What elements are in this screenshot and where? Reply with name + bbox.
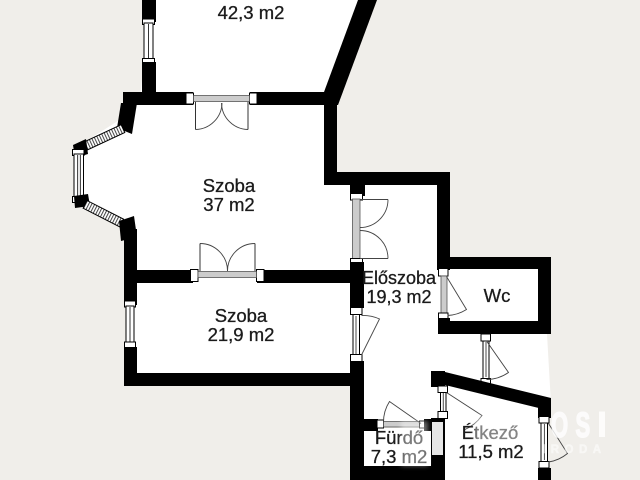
svg-text:Szoba: Szoba (215, 305, 268, 326)
svg-text:19,3 m2: 19,3 m2 (366, 287, 431, 307)
svg-text:IRODA: IRODA (542, 444, 607, 456)
svg-text:37 m2: 37 m2 (203, 194, 254, 215)
svg-text:Előszoba: Előszoba (362, 268, 437, 288)
svg-text:OS: OS (551, 406, 598, 446)
svg-text:Wc: Wc (484, 285, 511, 306)
svg-text:Szoba: Szoba (203, 175, 256, 196)
svg-text:21,9 m2: 21,9 m2 (208, 324, 275, 345)
svg-text:42,3 m2: 42,3 m2 (218, 2, 285, 23)
svg-text:11,5 m2: 11,5 m2 (458, 441, 523, 462)
